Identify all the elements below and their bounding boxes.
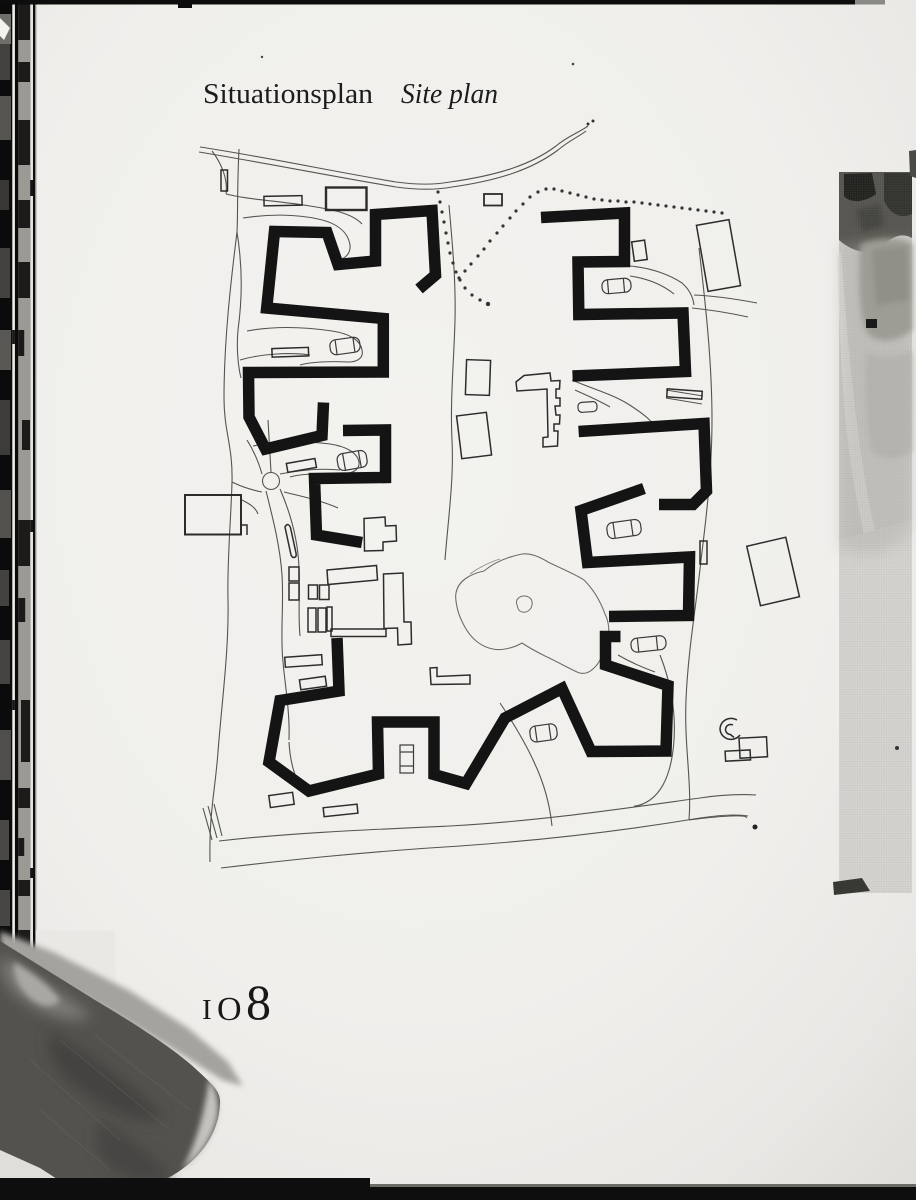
svg-text:O: O [217, 991, 242, 1028]
svg-text:Site plan: Site plan [401, 78, 498, 110]
svg-text:Situationsplan: Situationsplan [203, 78, 374, 110]
svg-text:I: I [202, 994, 212, 1026]
svg-text:8: 8 [246, 974, 271, 1030]
